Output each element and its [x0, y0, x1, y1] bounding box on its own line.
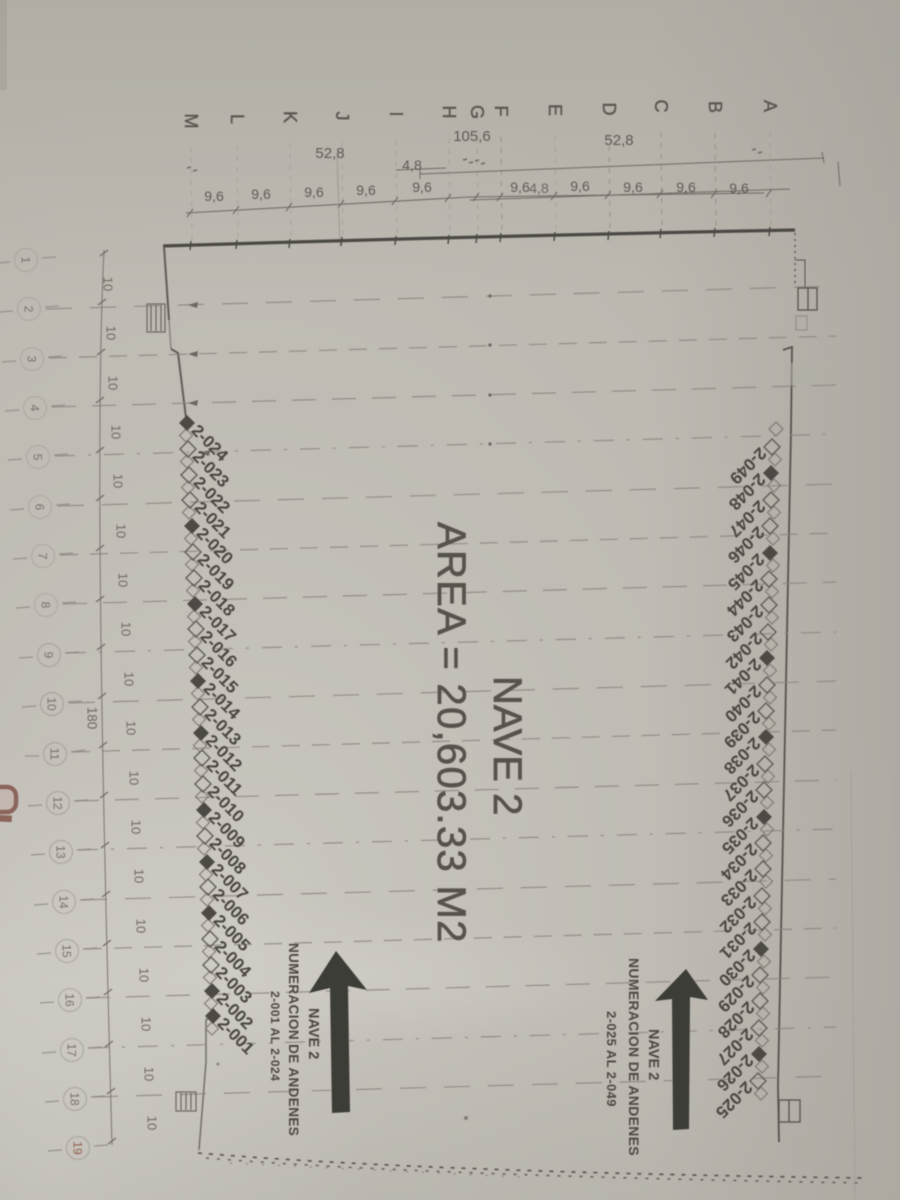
- svg-text:I: I: [386, 111, 406, 116]
- svg-text:180: 180: [85, 707, 100, 730]
- svg-text:10: 10: [111, 474, 126, 488]
- svg-text:10: 10: [116, 573, 131, 587]
- svg-text:10: 10: [104, 326, 119, 340]
- svg-text:2-001 AL 2-024: 2-001 AL 2-024: [268, 991, 282, 1081]
- svg-text:A: A: [760, 100, 780, 112]
- svg-text:E: E: [545, 104, 565, 116]
- svg-text:10: 10: [45, 697, 59, 711]
- svg-text:9: 9: [42, 652, 56, 659]
- svg-text:4,8: 4,8: [529, 180, 549, 196]
- svg-text:5: 5: [31, 454, 45, 461]
- svg-text:B: B: [705, 101, 725, 113]
- svg-text:52,8: 52,8: [315, 145, 344, 162]
- svg-text:9,6: 9,6: [676, 179, 696, 195]
- svg-text:10: 10: [101, 277, 116, 291]
- svg-text:9,6: 9,6: [570, 178, 590, 194]
- svg-text:NUMERACION DE ANDENES: NUMERACION DE ANDENES: [286, 943, 301, 1136]
- svg-text:16: 16: [63, 993, 77, 1007]
- svg-text:7: 7: [36, 553, 50, 560]
- svg-text:9,6: 9,6: [729, 180, 749, 196]
- svg-text:F: F: [491, 106, 511, 117]
- svg-text:9,6: 9,6: [510, 179, 530, 195]
- svg-text:NAVE 2: NAVE 2: [645, 1029, 661, 1080]
- svg-text:9,6: 9,6: [412, 179, 432, 195]
- svg-text:10: 10: [119, 622, 134, 636]
- svg-text:NAVE 2: NAVE 2: [485, 676, 529, 815]
- svg-text:9,6: 9,6: [356, 182, 376, 198]
- svg-text:105,6: 105,6: [453, 128, 491, 145]
- svg-text:9,6: 9,6: [623, 179, 643, 195]
- svg-text:10: 10: [137, 968, 152, 982]
- svg-text:18: 18: [68, 1092, 82, 1106]
- svg-text:NAVE 2: NAVE 2: [305, 1008, 321, 1059]
- svg-text:52,8: 52,8: [604, 132, 633, 149]
- svg-text:17: 17: [65, 1043, 79, 1057]
- svg-text:10: 10: [114, 524, 129, 538]
- svg-text:L: L: [227, 114, 247, 124]
- svg-text:AREA = 20,603.33 M2: AREA = 20,603.33 M2: [429, 522, 473, 944]
- svg-text:8: 8: [39, 602, 53, 609]
- svg-text:13: 13: [54, 845, 68, 859]
- svg-text:2: 2: [22, 306, 36, 313]
- svg-text:10: 10: [129, 820, 144, 834]
- svg-text:10: 10: [124, 721, 139, 735]
- svg-text:K: K: [280, 111, 300, 123]
- svg-text:10: 10: [109, 425, 124, 439]
- svg-text:10: 10: [127, 771, 142, 785]
- svg-text:2-025 AL 2-049: 2-025 AL 2-049: [604, 1011, 619, 1107]
- svg-text:J: J: [332, 112, 352, 121]
- svg-text:4: 4: [28, 405, 42, 412]
- svg-text:10: 10: [142, 1067, 157, 1081]
- svg-text:10: 10: [106, 376, 121, 390]
- svg-text:9,6: 9,6: [251, 186, 271, 202]
- svg-text:14: 14: [57, 895, 71, 909]
- svg-text:G: G: [467, 105, 487, 119]
- svg-text:1: 1: [19, 257, 33, 264]
- svg-text:15: 15: [60, 944, 74, 958]
- svg-text:M: M: [181, 114, 201, 129]
- svg-text:11: 11: [48, 748, 62, 761]
- svg-text:NUMERACION DE ANDENES: NUMERACION DE ANDENES: [626, 958, 642, 1156]
- svg-text:6: 6: [33, 504, 47, 511]
- svg-text:9,6: 9,6: [304, 184, 324, 200]
- svg-text:4,8: 4,8: [402, 157, 422, 173]
- svg-text:10: 10: [122, 672, 137, 686]
- svg-text:D: D: [599, 103, 619, 116]
- svg-text:9,6: 9,6: [204, 188, 224, 204]
- svg-text:C: C: [651, 100, 671, 113]
- svg-text:H: H: [439, 106, 459, 119]
- svg-text:3: 3: [25, 356, 39, 363]
- svg-text:10: 10: [134, 919, 149, 933]
- svg-text:19: 19: [71, 1141, 85, 1155]
- svg-text:10: 10: [145, 1116, 160, 1130]
- svg-text:10: 10: [139, 1017, 154, 1031]
- svg-text:12: 12: [51, 796, 65, 810]
- svg-text:10: 10: [132, 869, 147, 883]
